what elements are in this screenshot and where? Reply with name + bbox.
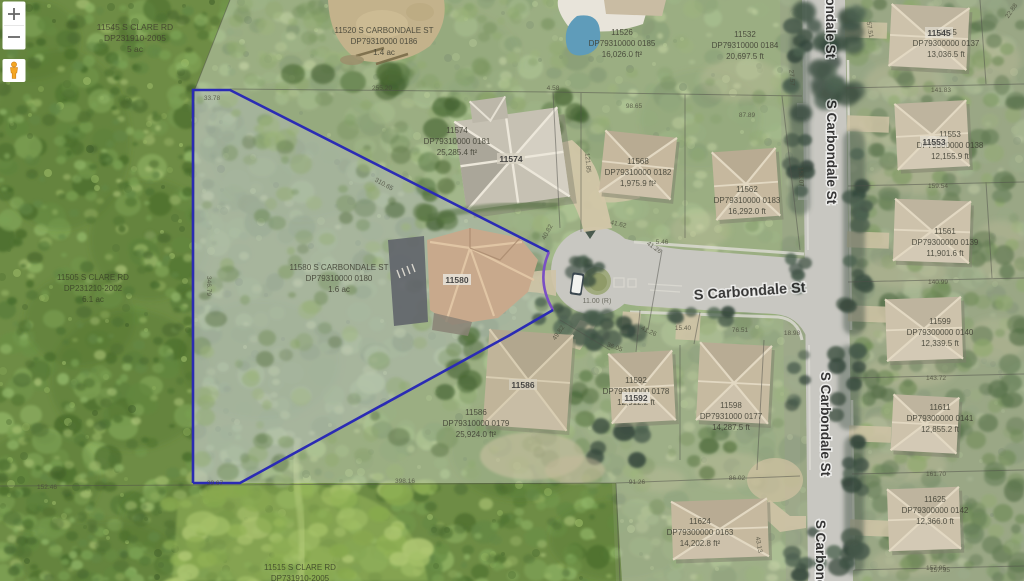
svg-text:DP79300000 0142: DP79300000 0142 — [902, 506, 969, 515]
svg-text:11532: 11532 — [734, 30, 756, 39]
svg-text:5.46: 5.46 — [656, 239, 669, 246]
svg-text:11545: 11545 — [927, 28, 950, 38]
svg-text:5 ac: 5 ac — [127, 44, 144, 54]
svg-text:11505 S CLARE RD: 11505 S CLARE RD — [57, 273, 129, 282]
svg-text:DP79310000 0183: DP79310000 0183 — [714, 196, 781, 205]
svg-text:87.89: 87.89 — [739, 112, 756, 119]
svg-text:152.46: 152.46 — [37, 484, 57, 491]
svg-text:91.26: 91.26 — [629, 479, 646, 486]
svg-text:S Carbondale St: S Carbondale St — [813, 520, 828, 581]
svg-text:11568: 11568 — [627, 157, 649, 166]
svg-text:140.99: 140.99 — [928, 279, 948, 286]
svg-text:161.70: 161.70 — [926, 471, 946, 478]
svg-text:12,366.0 ft: 12,366.0 ft — [916, 517, 955, 526]
svg-text:DP731910-2005: DP731910-2005 — [271, 574, 330, 581]
svg-text:11574: 11574 — [499, 154, 522, 164]
svg-text:11625: 11625 — [924, 495, 946, 504]
svg-text:76.51: 76.51 — [732, 327, 749, 334]
svg-text:6.1 ac: 6.1 ac — [82, 295, 104, 304]
svg-text:12,855.2 ft: 12,855.2 ft — [921, 425, 960, 434]
svg-text:DP79300000 0137: DP79300000 0137 — [913, 39, 980, 48]
svg-text:143.72: 143.72 — [926, 375, 946, 382]
svg-text:DP231210-2002: DP231210-2002 — [64, 284, 123, 293]
svg-text:27.57: 27.57 — [787, 69, 795, 86]
svg-text:DP7931000 0177: DP7931000 0177 — [700, 412, 763, 421]
svg-text:11545 S CLARE RD: 11545 S CLARE RD — [97, 22, 173, 32]
svg-text:DP79310000 0185: DP79310000 0185 — [589, 39, 656, 48]
svg-text:346.79: 346.79 — [205, 276, 212, 296]
svg-text:1.6 ac: 1.6 ac — [328, 285, 350, 294]
svg-text:25,285.4 ft²: 25,285.4 ft² — [437, 148, 478, 157]
svg-text:DP79300000 0163: DP79300000 0163 — [667, 528, 734, 537]
svg-text:20,697.5 ft: 20,697.5 ft — [726, 52, 765, 61]
svg-text:11611: 11611 — [929, 403, 951, 412]
svg-text:11586: 11586 — [465, 408, 487, 417]
svg-text:11526: 11526 — [611, 28, 633, 37]
svg-text:16,292.0 ft: 16,292.0 ft — [728, 207, 767, 216]
svg-text:39.67: 39.67 — [207, 480, 224, 487]
svg-text:11580: 11580 — [445, 275, 468, 285]
svg-text:S Carbondale St: S Carbondale St — [818, 372, 833, 477]
svg-text:DP79310000 0180: DP79310000 0180 — [306, 274, 373, 283]
svg-text:98.65: 98.65 — [626, 103, 643, 110]
svg-text:11,901.6 ft: 11,901.6 ft — [926, 249, 964, 258]
svg-text:11574: 11574 — [446, 126, 468, 135]
svg-text:86.02: 86.02 — [729, 475, 746, 482]
svg-text:DP79300000 0139: DP79300000 0139 — [912, 238, 979, 247]
svg-text:11520 S CARBONDALE ST: 11520 S CARBONDALE ST — [334, 26, 433, 35]
svg-text:141.83: 141.83 — [931, 87, 951, 94]
svg-text:14,287.5 ft: 14,287.5 ft — [712, 423, 751, 432]
svg-text:11553: 11553 — [922, 137, 945, 147]
svg-text:DP231910-2005: DP231910-2005 — [104, 33, 166, 43]
svg-text:25,924.0 ft²: 25,924.0 ft² — [456, 430, 497, 439]
svg-text:DP79300000 0141: DP79300000 0141 — [907, 414, 974, 423]
svg-text:11580 S CARBONDALE ST: 11580 S CARBONDALE ST — [289, 263, 388, 272]
svg-text:16,026.0 ft²: 16,026.0 ft² — [602, 50, 643, 59]
svg-text:11.00 (R): 11.00 (R) — [583, 298, 612, 305]
svg-text:12,339.5 ft: 12,339.5 ft — [921, 339, 960, 348]
svg-text:11561: 11561 — [934, 227, 956, 236]
svg-text:153.07: 153.07 — [796, 167, 804, 188]
svg-text:11624: 11624 — [689, 517, 711, 526]
svg-text:33.78: 33.78 — [204, 95, 221, 102]
svg-text:15.40: 15.40 — [675, 325, 692, 332]
svg-text:DP79310000 0182: DP79310000 0182 — [605, 168, 672, 177]
svg-text:11586: 11586 — [511, 380, 534, 390]
svg-text:12,155.9 ft: 12,155.9 ft — [931, 152, 970, 161]
svg-text:DP79310000 0184: DP79310000 0184 — [712, 41, 779, 50]
svg-text:398.16: 398.16 — [395, 478, 415, 485]
svg-text:11562: 11562 — [736, 185, 758, 194]
svg-text:DP79310000 0186: DP79310000 0186 — [351, 37, 418, 46]
svg-text:255.20: 255.20 — [372, 85, 392, 92]
svg-text:DP79310000 0181: DP79310000 0181 — [424, 137, 491, 146]
svg-text:4.58: 4.58 — [547, 85, 560, 92]
svg-text:11592: 11592 — [625, 376, 647, 385]
svg-text:18.98: 18.98 — [784, 330, 801, 337]
svg-text:DP79300000 0140: DP79300000 0140 — [907, 328, 974, 337]
svg-text:DP79310000 0179: DP79310000 0179 — [443, 419, 510, 428]
svg-text:S Carbondale St: S Carbondale St — [824, 100, 839, 205]
svg-text:1.4 ac: 1.4 ac — [373, 48, 395, 57]
svg-text:11598: 11598 — [720, 401, 742, 410]
svg-text:157.95: 157.95 — [926, 565, 946, 572]
svg-text:11515 S CLARE RD: 11515 S CLARE RD — [264, 563, 336, 572]
svg-text:159.54: 159.54 — [928, 183, 948, 190]
svg-text:1,975.9 ft²: 1,975.9 ft² — [620, 179, 656, 188]
svg-text:13,036.5 ft: 13,036.5 ft — [927, 50, 966, 59]
svg-text:11592: 11592 — [624, 393, 647, 403]
svg-text:11599: 11599 — [929, 317, 951, 326]
svg-text:S Carbondale St: S Carbondale St — [823, 0, 838, 59]
svg-text:14,202.8 ft²: 14,202.8 ft² — [680, 539, 721, 548]
